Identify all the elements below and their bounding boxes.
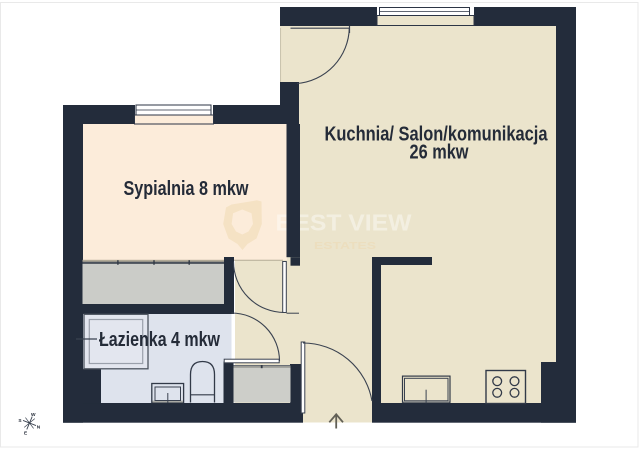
svg-text:Sypialnia 8 mkw: Sypialnia 8 mkw (124, 178, 249, 200)
svg-text:N: N (37, 425, 41, 431)
svg-text:W: W (31, 412, 36, 418)
svg-text:26 mkw: 26 mkw (410, 142, 469, 164)
svg-text:Łazienka 4 mkw: Łazienka 4 mkw (99, 329, 220, 351)
svg-text:ESTATES: ESTATES (314, 241, 376, 252)
